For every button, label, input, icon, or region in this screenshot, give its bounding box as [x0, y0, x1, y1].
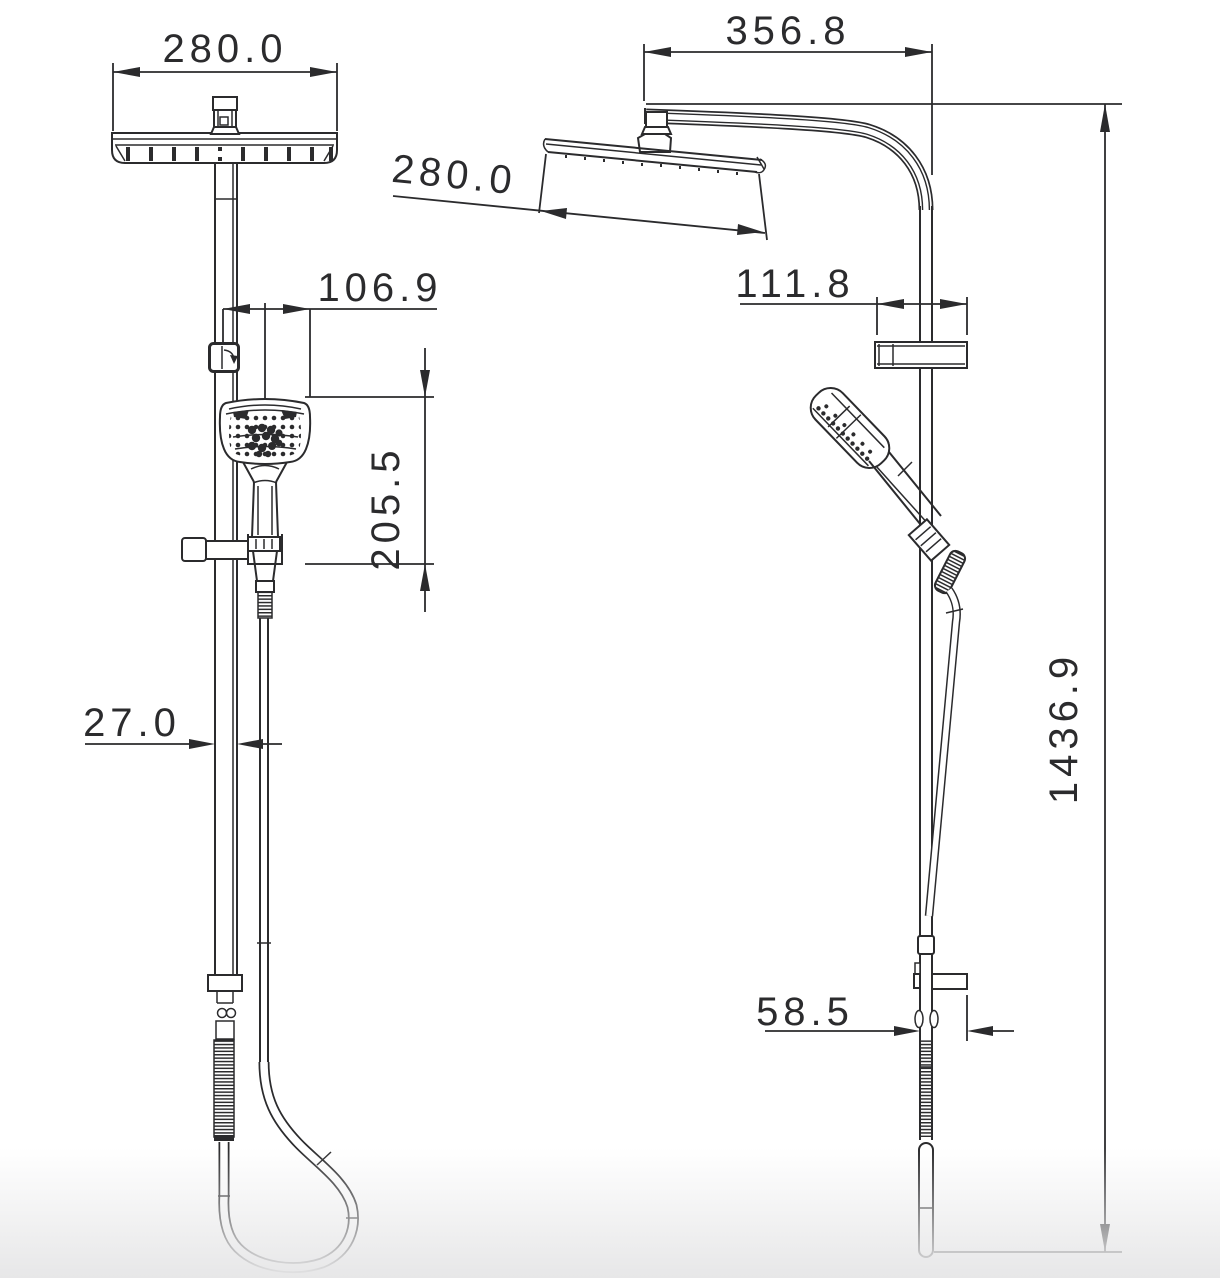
dimension-line [644, 44, 932, 175]
arrowhead-right [737, 224, 763, 235]
head-mount-front [211, 97, 239, 134]
arrowhead-bottom [420, 564, 430, 591]
dim-front-head-width-label: 280.0 [162, 27, 287, 71]
arrowhead-top [420, 370, 430, 397]
wall-bracket-lower [914, 974, 967, 1028]
arrowhead-right [940, 299, 967, 309]
rain-head-front [112, 133, 337, 163]
rail-coupler [208, 975, 242, 991]
arrowhead-right [283, 304, 310, 314]
arrowhead-left [877, 299, 904, 309]
arrowhead-left [113, 67, 140, 77]
dim-front-rail-width-label: 27.0 [83, 701, 181, 745]
dim-front-handheld-drop-label: 205.5 [364, 445, 408, 570]
arrowhead-left [541, 208, 567, 219]
hose-loop [224, 1062, 354, 1268]
handle-collar-side [909, 519, 949, 560]
dim-front-handheld-offset: 106.9 [223, 266, 443, 411]
hose-spring-wrap [214, 1040, 234, 1137]
dimension-line [223, 303, 437, 411]
arrowhead-left [894, 1026, 920, 1036]
dim-side-head-depth-label: 280.0 [390, 147, 519, 203]
hose-wrap-side [919, 1040, 933, 1137]
arrowhead-top [1100, 104, 1110, 132]
arrowhead-right [967, 1026, 993, 1036]
arrowhead-right [237, 739, 263, 749]
hose-coupler-side [918, 936, 934, 954]
dim-side-total-height: 1436.9 [934, 104, 1122, 1252]
shower-rail-front [215, 163, 237, 975]
dim-side-lower-offset: 58.5 [756, 990, 1014, 1041]
arrowhead-left [189, 739, 215, 749]
front-view: 280.0 [83, 27, 442, 1268]
curved-arm-side [645, 108, 926, 210]
hose-assembly-front [208, 975, 358, 1268]
hose-upper-front [260, 618, 268, 1062]
rain-head-slots [128, 147, 331, 161]
arrowhead-right [905, 47, 932, 57]
dim-side-lower-offset-label: 58.5 [756, 990, 854, 1034]
hose-connector [256, 581, 274, 592]
dim-side-total-height-label: 1436.9 [1042, 652, 1086, 804]
strain-relief [258, 592, 272, 618]
slider-clamp-front [210, 344, 239, 372]
technical-drawing-canvas: 280.0 [0, 0, 1220, 1278]
dim-side-bracket-width-label: 111.8 [735, 262, 854, 306]
wall-bracket-upper [875, 342, 967, 368]
side-view: 356.8 280.0 [390, 9, 1122, 1257]
arrowhead-right [310, 67, 337, 77]
dim-front-handheld-offset-label: 106.9 [317, 266, 442, 310]
arrowhead-bottom [1100, 1224, 1110, 1252]
hose-end-side [919, 1143, 933, 1257]
arrowhead-left [644, 47, 671, 57]
nozzle-ticks [566, 155, 737, 175]
dim-side-arm-reach: 356.8 [644, 9, 932, 175]
shower-drawing: 280.0 [0, 0, 1220, 1278]
hand-shower-side [804, 381, 967, 954]
dim-front-handheld-drop: 205.5 [305, 348, 434, 612]
dimension-line [934, 104, 1122, 1252]
dim-front-rail-width: 27.0 [83, 701, 282, 749]
dim-side-head-depth: 280.0 [390, 147, 767, 240]
dim-side-arm-reach-label: 356.8 [725, 9, 850, 53]
